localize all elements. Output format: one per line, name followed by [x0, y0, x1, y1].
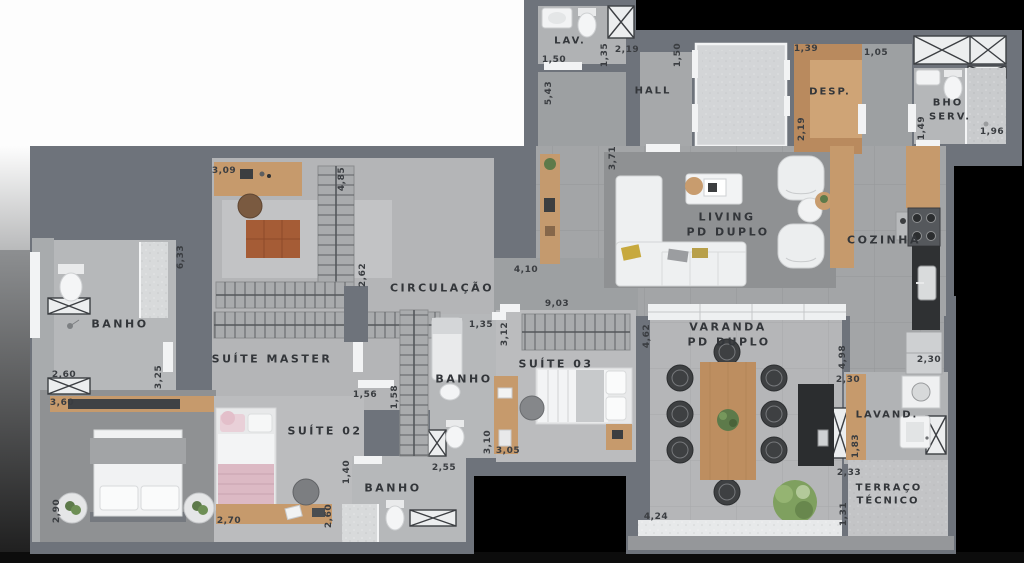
room-label-cozinha: COZINHA [847, 234, 921, 247]
room-label-suite-03: SUÍTE 03 [518, 358, 593, 371]
room-label-varanda-1: VARANDA [689, 321, 767, 334]
dim-label: 1,83 [851, 434, 861, 458]
dim-label: 2,19 [615, 45, 639, 55]
plant [773, 480, 817, 524]
dim-label: 1,56 [353, 390, 377, 400]
dim-label: 2,33 [837, 468, 861, 478]
dim-label: 2,90 [52, 499, 62, 523]
wardrobe-row-1 [216, 282, 354, 308]
shaft-banhos [428, 430, 446, 456]
room-label-banho-social: BANHO [435, 373, 492, 386]
shaft-lav [608, 6, 634, 38]
floor-plan-page: LAV. HALL DESP. BHO SERV. LIVING PD DUPL… [0, 0, 1024, 563]
dim-label: 2,60 [324, 504, 334, 528]
dim-label: 4,10 [514, 265, 538, 275]
desk-chair [520, 396, 544, 420]
dim-label: 2,55 [432, 463, 456, 473]
linen-wardrobe [400, 310, 428, 456]
room-label-lav: LAV. [554, 36, 586, 47]
dim-label: 2,62 [358, 263, 368, 287]
sideboard [540, 154, 560, 264]
room-label-banho-suite02: BANHO [364, 482, 421, 495]
dim-label: 6,33 [176, 245, 186, 269]
dim-label: 1,39 [794, 44, 818, 54]
dim-label: 1,35 [600, 43, 610, 67]
dim-label: 1,40 [342, 460, 352, 484]
dim-label: 4,98 [838, 345, 848, 369]
dim-label: 1,05 [864, 48, 888, 58]
room-label-suite-02: SUÍTE 02 [287, 425, 362, 438]
dim-label: 2,19 [797, 117, 807, 141]
room-label-desp: DESP. [809, 87, 851, 98]
dim-label: 3,10 [483, 430, 493, 454]
dim-label: 1,50 [673, 43, 683, 67]
desk-chair [238, 194, 262, 218]
room-label-terraco-2: TÉCNICO [857, 496, 920, 507]
dim-label: 3,60 [50, 398, 74, 408]
wardrobe [522, 314, 630, 350]
hall-floor [640, 52, 692, 148]
dim-label: 2,30 [917, 355, 941, 365]
dim-label: 4,62 [642, 324, 652, 348]
armchair-1 [778, 156, 824, 200]
room-label-terraco-1: TERRAÇO [856, 483, 923, 494]
room-label-bho-serv-2: SERV. [929, 112, 971, 123]
room-label-living-1: LIVING [699, 211, 756, 224]
dim-label: 9,03 [545, 299, 569, 309]
shaft-lavand-left [832, 408, 848, 458]
dim-label: 1,96 [980, 127, 1004, 137]
room-label-banho-master: BANHO [91, 318, 148, 331]
room-label-circulacao: CIRCULAÇÃO [390, 282, 494, 295]
room-label-hall: HALL [635, 86, 672, 97]
room-label-bho-serv-1: BHO [933, 98, 964, 109]
dim-label: 5,43 [544, 81, 554, 105]
dim-label: 1,58 [390, 385, 400, 409]
dim-label: 3,25 [154, 365, 164, 389]
dim-label: 4,85 [337, 167, 347, 191]
room-label-varanda-2: PD DUPLO [687, 336, 770, 349]
dim-label: 4,24 [644, 512, 668, 522]
coffee-table [685, 174, 742, 204]
dim-label: 3,05 [496, 446, 520, 456]
vanity-banho02 [410, 510, 456, 526]
vanity-master-2 [48, 378, 90, 394]
shaft-serv-top [914, 36, 1006, 64]
dim-label: 2,30 [836, 375, 860, 385]
room-label-lavand: LAVAND. [856, 410, 919, 421]
bar-counter [830, 146, 854, 268]
dim-label: 1,49 [917, 116, 927, 140]
cabinet [798, 384, 834, 466]
armchair-2 [778, 224, 824, 268]
dim-label: 3,71 [608, 146, 618, 170]
dim-label: 3,12 [500, 322, 510, 346]
dim-label: 2,60 [52, 370, 76, 380]
dim-label: 1,50 [542, 55, 566, 65]
room-label-suite-master: SUÍTE MASTER [212, 353, 333, 366]
desk-chair [293, 479, 319, 505]
room-label-living-2: PD DUPLO [686, 226, 769, 239]
dim-label: 1,31 [839, 502, 849, 526]
dim-label: 2,70 [217, 516, 241, 526]
floor-plan-graphic [0, 0, 1024, 563]
dim-label: 3,09 [212, 166, 236, 176]
dim-label: 1,35 [469, 320, 493, 330]
